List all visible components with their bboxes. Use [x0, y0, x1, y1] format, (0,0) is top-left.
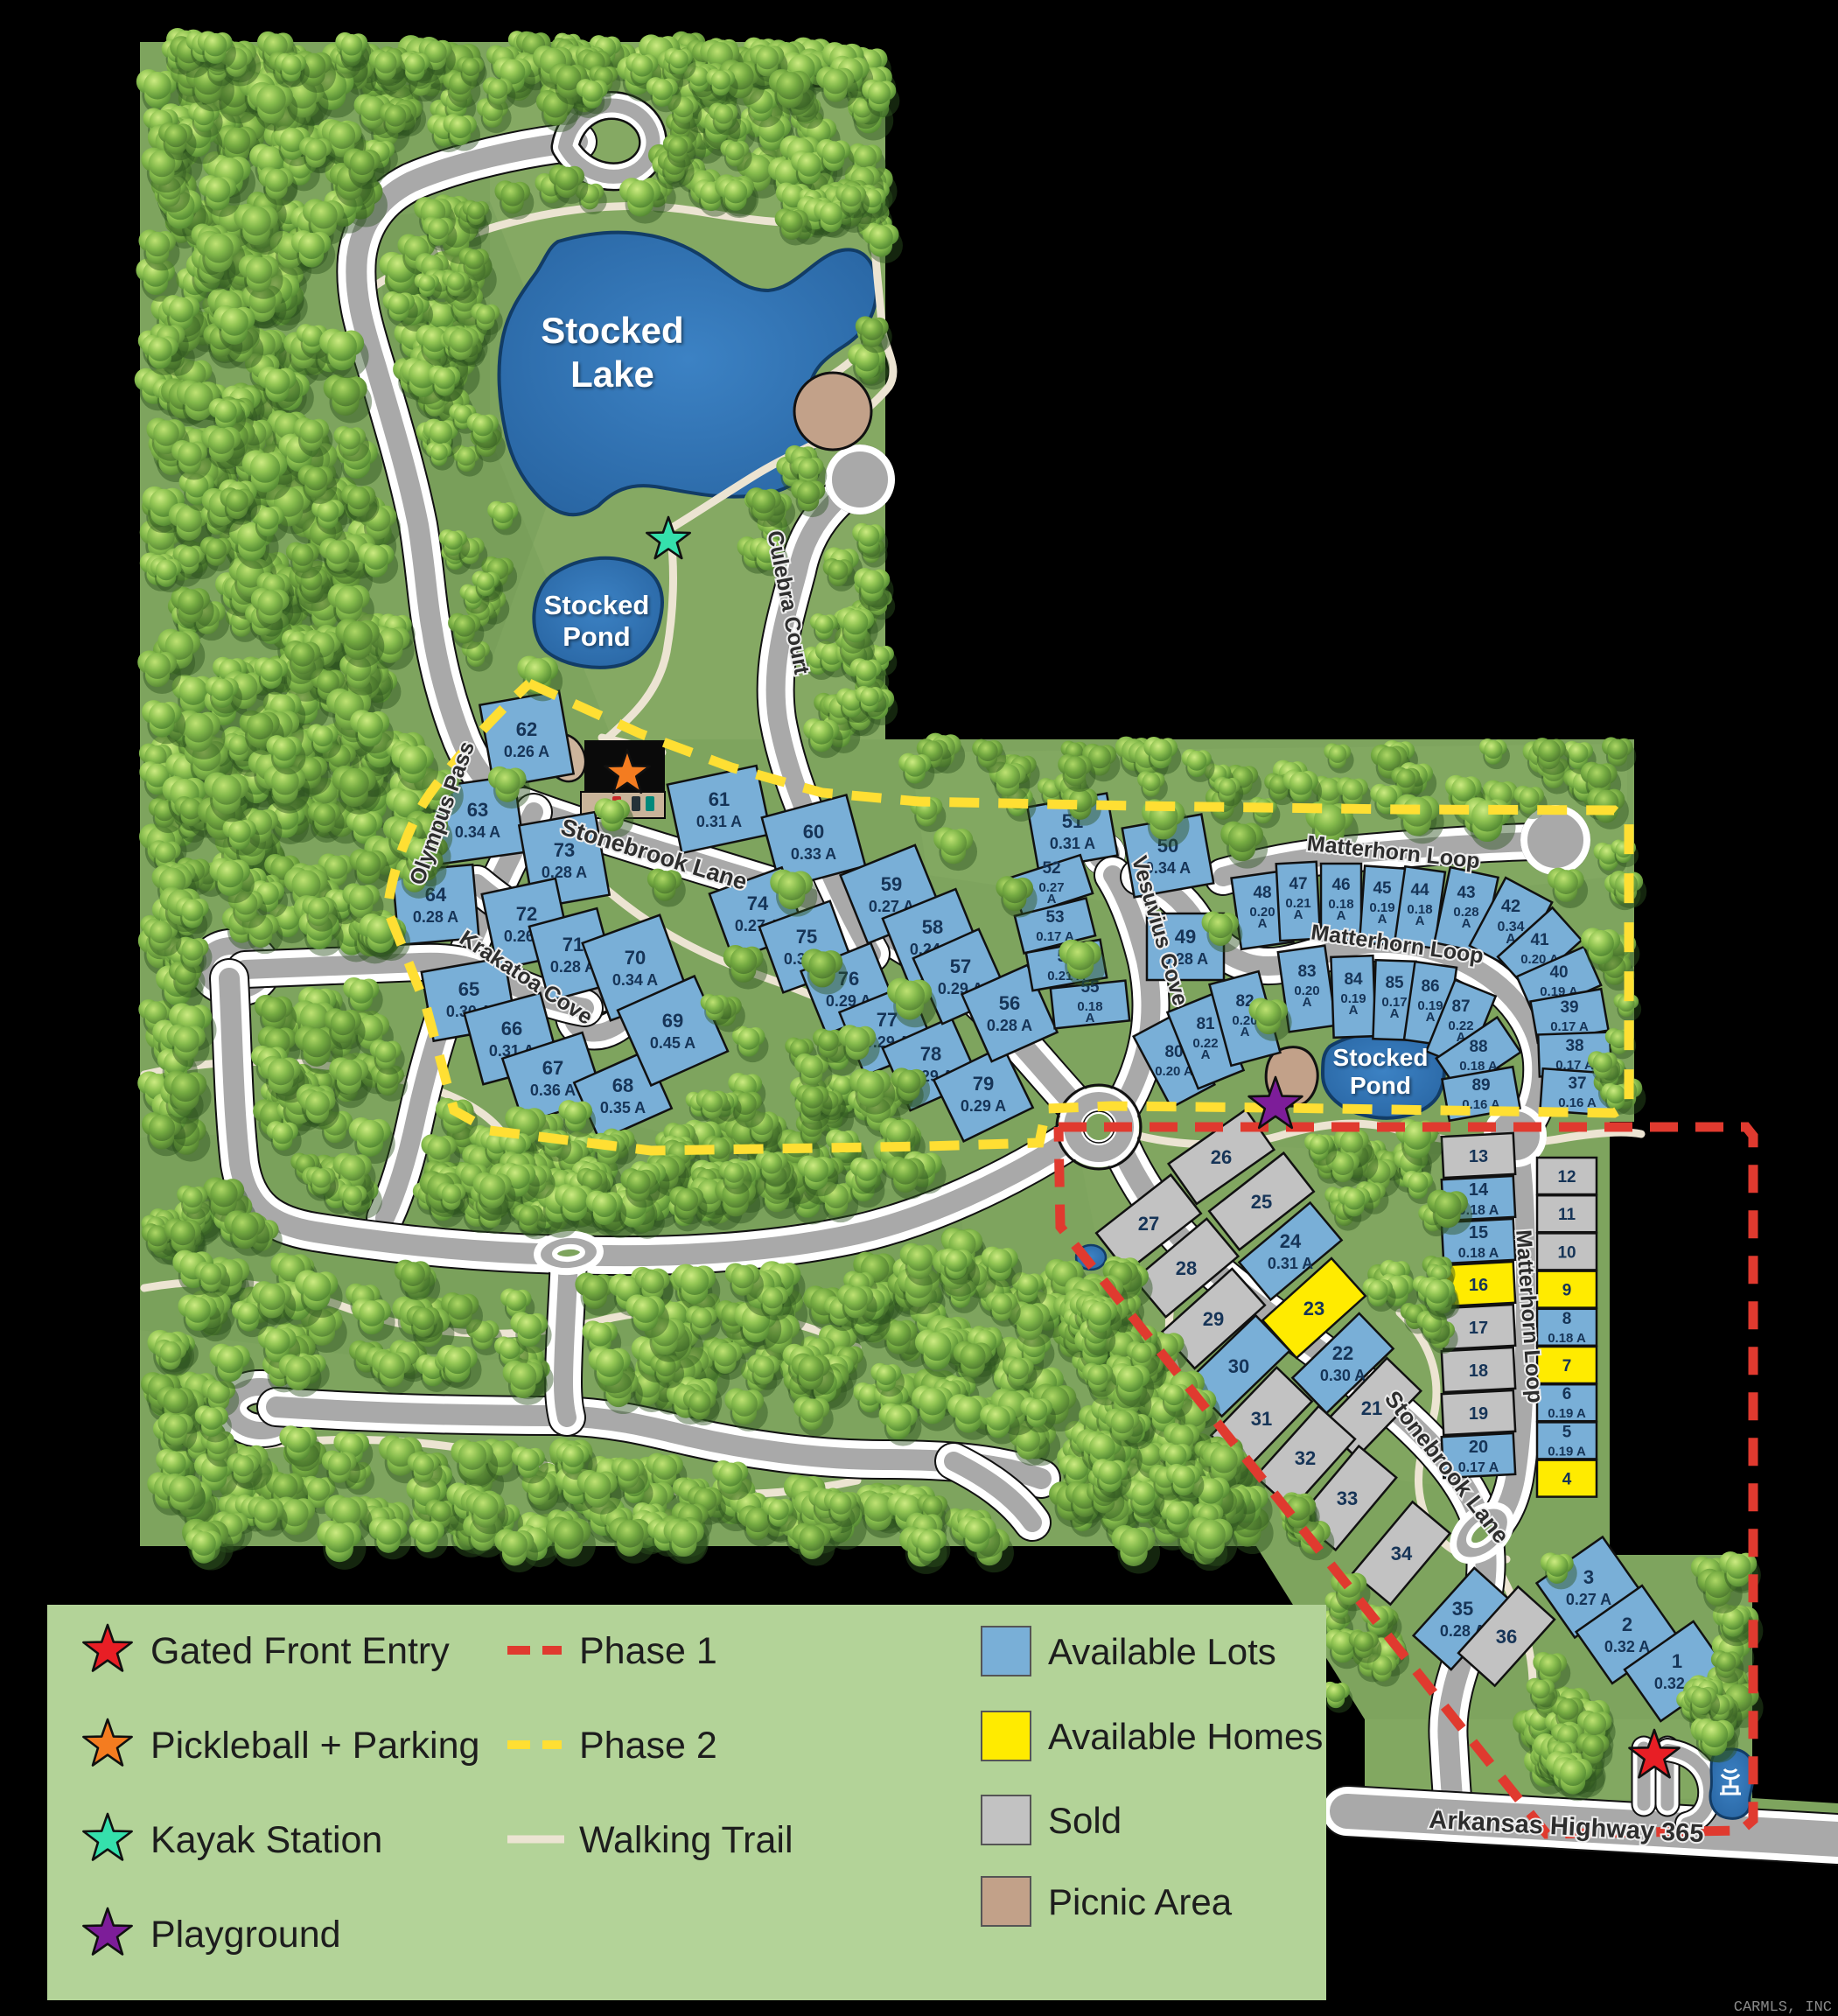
svg-text:0.31 A: 0.31 A	[1268, 1255, 1313, 1272]
svg-text:27: 27	[1138, 1213, 1159, 1235]
svg-text:29: 29	[1203, 1308, 1224, 1330]
svg-text:A: A	[1415, 913, 1425, 928]
svg-text:Stocked: Stocked	[541, 310, 683, 351]
svg-text:42: 42	[1501, 897, 1520, 916]
svg-text:0.19 A: 0.19 A	[1548, 1406, 1586, 1421]
svg-text:0.45 A: 0.45 A	[650, 1034, 695, 1052]
svg-text:Kayak Station: Kayak Station	[150, 1819, 382, 1861]
svg-text:A: A	[1303, 995, 1312, 1010]
svg-text:Picnic Area: Picnic Area	[1048, 1881, 1233, 1922]
svg-text:84: 84	[1344, 970, 1363, 989]
svg-text:69: 69	[662, 1010, 683, 1032]
svg-text:34: 34	[1391, 1543, 1413, 1564]
svg-text:49: 49	[1175, 926, 1196, 948]
svg-text:16: 16	[1469, 1276, 1488, 1295]
svg-text:Pickleball + Parking: Pickleball + Parking	[150, 1725, 479, 1767]
svg-text:87: 87	[1451, 997, 1470, 1016]
svg-text:4: 4	[1562, 1471, 1572, 1489]
svg-text:71: 71	[563, 934, 584, 955]
svg-text:0.18 A: 0.18 A	[1458, 1246, 1499, 1261]
svg-text:86: 86	[1421, 977, 1439, 996]
svg-text:14: 14	[1469, 1180, 1489, 1200]
svg-text:28: 28	[1176, 1257, 1197, 1279]
svg-text:15: 15	[1469, 1223, 1488, 1242]
svg-text:A: A	[1462, 916, 1471, 931]
svg-text:85: 85	[1385, 974, 1404, 992]
svg-text:A: A	[1258, 916, 1268, 931]
svg-text:60: 60	[803, 821, 824, 843]
svg-text:A: A	[1378, 912, 1387, 927]
svg-text:Playground: Playground	[150, 1914, 341, 1956]
svg-text:17: 17	[1469, 1319, 1488, 1338]
svg-text:40: 40	[1549, 963, 1568, 982]
svg-text:23: 23	[1303, 1298, 1324, 1319]
svg-text:3: 3	[1583, 1566, 1594, 1588]
svg-text:Stocked: Stocked	[544, 590, 650, 620]
svg-text:2: 2	[1622, 1613, 1632, 1635]
svg-text:Available Lots: Available Lots	[1048, 1631, 1276, 1672]
svg-text:0.35 A: 0.35 A	[600, 1099, 646, 1116]
svg-text:A: A	[1086, 1011, 1095, 1025]
svg-text:31: 31	[1251, 1408, 1272, 1430]
svg-text:0.34 A: 0.34 A	[612, 971, 658, 989]
svg-text:37: 37	[1568, 1074, 1586, 1093]
svg-text:65: 65	[458, 978, 479, 1000]
svg-text:0.30 A: 0.30 A	[1320, 1367, 1366, 1384]
svg-text:CARMLS, INC: CARMLS, INC	[1734, 1999, 1832, 2016]
svg-text:0.32 A: 0.32 A	[1604, 1638, 1650, 1655]
svg-text:57: 57	[950, 955, 971, 977]
svg-text:0.33 A: 0.33 A	[791, 845, 836, 863]
svg-text:Pond: Pond	[1350, 1072, 1411, 1099]
svg-text:56: 56	[999, 992, 1020, 1014]
svg-text:Sold: Sold	[1048, 1800, 1122, 1841]
svg-text:25: 25	[1251, 1191, 1272, 1213]
svg-text:63: 63	[467, 799, 488, 821]
svg-text:35: 35	[1452, 1598, 1473, 1620]
svg-text:39: 39	[1560, 998, 1578, 1017]
svg-text:38: 38	[1565, 1037, 1583, 1055]
svg-text:Stocked: Stocked	[1333, 1044, 1429, 1071]
svg-text:A: A	[1349, 1003, 1359, 1018]
svg-text:59: 59	[881, 873, 902, 895]
svg-text:0.29 A: 0.29 A	[961, 1097, 1006, 1115]
svg-text:24: 24	[1280, 1230, 1302, 1252]
svg-text:46: 46	[1331, 876, 1350, 894]
svg-text:0.27 A: 0.27 A	[1566, 1591, 1611, 1608]
svg-text:Pond: Pond	[563, 621, 631, 652]
svg-text:A: A	[1337, 908, 1346, 923]
svg-text:83: 83	[1297, 962, 1316, 981]
svg-text:A: A	[1390, 1006, 1400, 1021]
svg-text:75: 75	[796, 926, 817, 948]
svg-text:48: 48	[1253, 884, 1271, 902]
svg-text:7: 7	[1562, 1357, 1572, 1375]
svg-text:5: 5	[1562, 1423, 1572, 1441]
svg-text:0.19 A: 0.19 A	[1548, 1444, 1586, 1459]
svg-text:81: 81	[1196, 1015, 1215, 1033]
svg-text:36: 36	[1496, 1626, 1517, 1648]
svg-text:A: A	[1294, 907, 1303, 922]
svg-text:0.20 A: 0.20 A	[1155, 1064, 1193, 1079]
svg-text:43: 43	[1457, 884, 1475, 902]
svg-text:8: 8	[1562, 1310, 1572, 1328]
svg-text:32: 32	[1295, 1447, 1316, 1469]
svg-text:0.31 A: 0.31 A	[696, 813, 742, 830]
svg-text:33: 33	[1337, 1487, 1358, 1509]
svg-text:30: 30	[1228, 1355, 1249, 1377]
svg-text:6: 6	[1562, 1385, 1572, 1403]
svg-text:13: 13	[1469, 1147, 1488, 1166]
svg-text:68: 68	[612, 1074, 633, 1096]
svg-text:62: 62	[516, 718, 537, 740]
svg-text:0.26 A: 0.26 A	[504, 743, 549, 760]
svg-text:0.36 A: 0.36 A	[530, 1081, 576, 1099]
svg-text:61: 61	[709, 788, 730, 810]
svg-text:A: A	[1201, 1047, 1211, 1062]
svg-text:Phase 1: Phase 1	[579, 1630, 717, 1672]
svg-text:9: 9	[1562, 1282, 1572, 1300]
svg-text:0.28 A: 0.28 A	[542, 864, 587, 881]
svg-text:67: 67	[542, 1057, 563, 1079]
svg-text:66: 66	[501, 1018, 522, 1039]
svg-text:0.28 A: 0.28 A	[987, 1017, 1032, 1034]
svg-text:0.34 A: 0.34 A	[455, 823, 500, 841]
svg-text:22: 22	[1332, 1342, 1353, 1364]
svg-text:A: A	[1240, 1025, 1250, 1039]
svg-text:74: 74	[747, 892, 769, 914]
svg-text:21: 21	[1361, 1397, 1382, 1419]
svg-text:A: A	[1426, 1010, 1436, 1025]
svg-text:79: 79	[973, 1073, 994, 1095]
svg-text:88: 88	[1469, 1038, 1487, 1056]
svg-text:Lake: Lake	[570, 353, 654, 395]
svg-text:Walking Trail: Walking Trail	[579, 1819, 793, 1861]
svg-text:20: 20	[1469, 1438, 1488, 1457]
svg-text:0.28 A: 0.28 A	[413, 908, 458, 926]
svg-text:44: 44	[1410, 881, 1429, 899]
svg-text:41: 41	[1530, 931, 1549, 949]
svg-text:Phase 2: Phase 2	[579, 1725, 717, 1767]
svg-text:18: 18	[1469, 1361, 1488, 1381]
svg-text:45: 45	[1373, 879, 1392, 898]
svg-text:0.18 A: 0.18 A	[1548, 1331, 1586, 1346]
svg-text:47: 47	[1289, 875, 1307, 893]
svg-text:70: 70	[625, 947, 646, 969]
svg-text:A: A	[1047, 892, 1057, 906]
svg-text:0.31 A: 0.31 A	[1050, 835, 1095, 852]
svg-text:52: 52	[1042, 859, 1060, 878]
svg-text:10: 10	[1557, 1243, 1576, 1262]
svg-text:53: 53	[1045, 908, 1064, 927]
svg-text:78: 78	[920, 1043, 941, 1065]
svg-text:19: 19	[1469, 1404, 1488, 1424]
svg-text:26: 26	[1211, 1146, 1232, 1168]
svg-text:Available Homes: Available Homes	[1048, 1716, 1323, 1757]
svg-text:1: 1	[1672, 1650, 1682, 1672]
svg-text:Gated Front Entry: Gated Front Entry	[150, 1630, 450, 1672]
svg-text:11: 11	[1558, 1206, 1576, 1224]
svg-text:12: 12	[1557, 1168, 1576, 1186]
svg-text:58: 58	[922, 916, 943, 938]
svg-text:72: 72	[516, 903, 537, 925]
svg-text:89: 89	[1471, 1076, 1490, 1095]
